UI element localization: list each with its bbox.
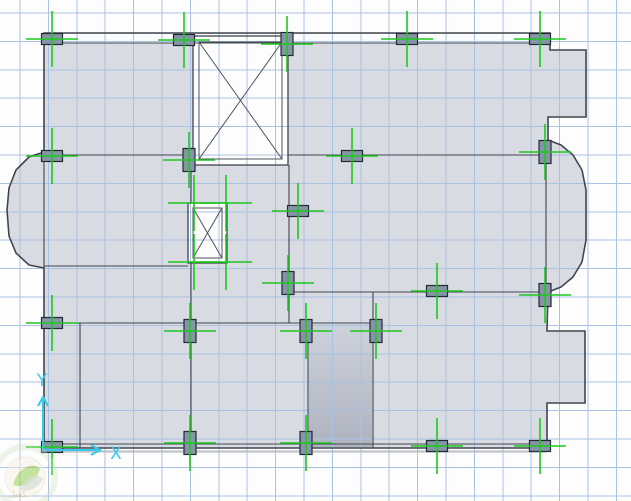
watermark-text: كفيل: [8, 490, 27, 500]
watermark-logo: كفيل: [0, 447, 55, 501]
y-axis-label: Y: [36, 371, 48, 391]
floorplan-drawing[interactable]: XYكفيل: [0, 0, 631, 501]
x-axis-label: X: [110, 444, 122, 464]
stair-room: [309, 324, 372, 447]
cad-viewport[interactable]: XYكفيل: [0, 0, 631, 501]
